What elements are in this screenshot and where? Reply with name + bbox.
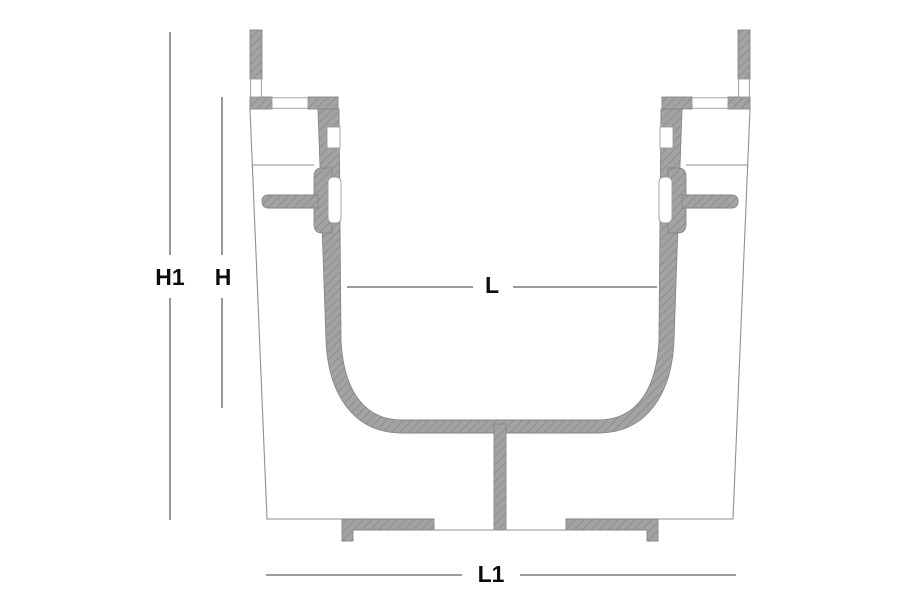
rail-top-slot-left [272,98,308,109]
bracket-slot-left [328,177,341,223]
dimension-label-l1: L1 [478,561,505,587]
clamp-bracket-left [262,168,341,233]
edge-rail-upstand-right [738,30,750,97]
bracket-slot-right [659,177,672,223]
edge-rail-top-left [250,97,338,109]
dimension-label-l: L [485,272,499,298]
rail-top-slot-right [692,98,728,109]
rail-top-block-inner-left [308,97,338,109]
edge-rail-upstand-left [250,30,262,97]
diagram-canvas: H1 H L L1 [0,0,902,601]
edge-rail-top-right [662,97,750,109]
wall-slot-upper-left [327,127,340,148]
dimension-l: L [347,272,657,298]
rail-top-block-outer-left [250,97,272,109]
upstand-bar-right [738,30,750,79]
channel-cross-section-drawing: H1 H L L1 [0,0,902,601]
rail-top-block-inner-right [662,97,692,109]
upstand-insert-right [739,79,750,97]
u-channel-wall-section [318,109,682,433]
dimension-h1: H1 [155,32,185,520]
upstand-insert-left [251,79,262,97]
bracket-arm-right [682,195,738,208]
dimension-h: H [215,97,232,408]
bottom-center-rib [494,424,506,530]
dimension-l1: L1 [266,561,736,587]
foot-right [566,519,658,541]
clamp-bracket-right [659,168,738,233]
foot-left [342,519,434,541]
dimension-label-h1: H1 [155,264,185,290]
rail-top-block-outer-right [728,97,750,109]
bracket-arm-left [262,195,318,208]
dimension-label-h: H [215,264,232,290]
wall-slot-upper-right [660,127,673,148]
upstand-bar-left [250,30,262,79]
